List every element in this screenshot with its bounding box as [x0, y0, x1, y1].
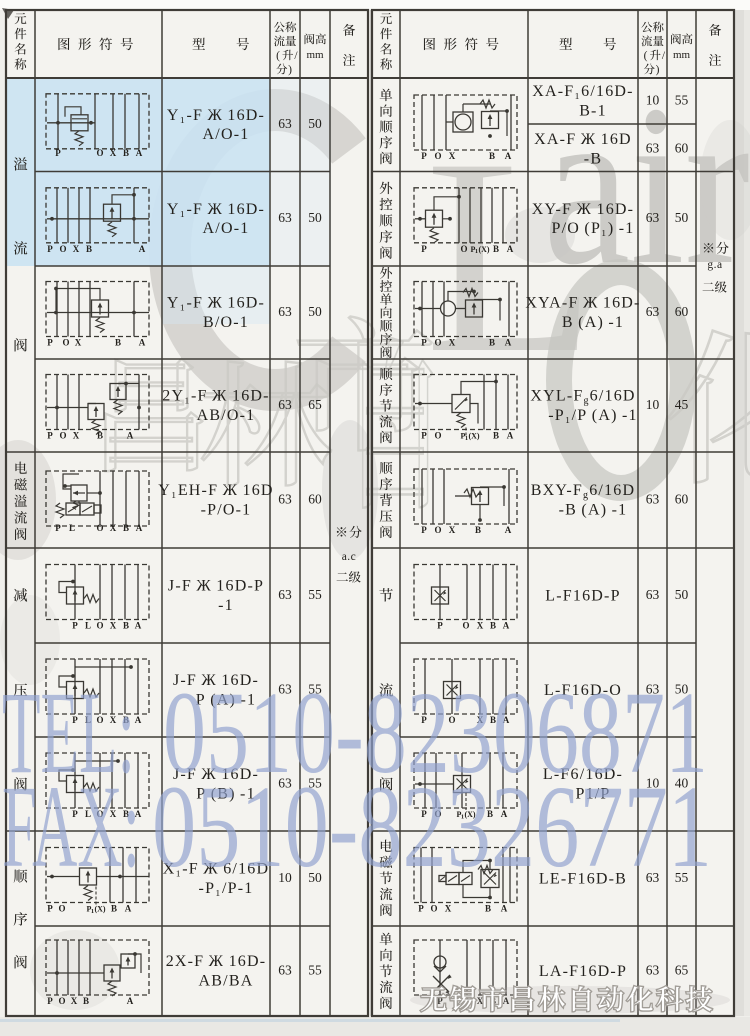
svg-text:O: O: [434, 151, 441, 161]
svg-text:B: B: [123, 621, 129, 631]
svg-text:g.a: g.a: [707, 259, 722, 271]
svg-text:O: O: [434, 338, 441, 348]
svg-text:A: A: [139, 338, 146, 348]
svg-text:A: A: [501, 904, 508, 914]
svg-text:P: P: [421, 431, 427, 441]
svg-text:B: B: [115, 338, 121, 348]
svg-text:P: P: [437, 621, 443, 631]
svg-text:10: 10: [646, 397, 660, 412]
svg-text:55: 55: [308, 963, 322, 978]
svg-text:0510-82326771: 0510-82326771: [152, 761, 712, 892]
svg-text:B (A) -1: B (A) -1: [562, 314, 624, 331]
svg-text:X: X: [73, 244, 80, 254]
svg-text:B: B: [490, 621, 496, 631]
svg-text:P: P: [55, 148, 61, 158]
svg-text:(X): (X): [468, 432, 479, 441]
svg-text:63: 63: [646, 963, 660, 978]
svg-text:B: B: [493, 431, 499, 441]
svg-text:45: 45: [675, 397, 689, 412]
svg-text:O: O: [58, 904, 65, 914]
svg-text:50: 50: [675, 587, 689, 602]
svg-text:A: A: [507, 431, 514, 441]
svg-text:X: X: [477, 621, 484, 631]
svg-text:63: 63: [646, 492, 660, 507]
svg-text:(: (: [644, 50, 648, 62]
svg-text:A: A: [125, 904, 132, 914]
svg-text:P: P: [418, 904, 424, 914]
svg-text:X: X: [445, 904, 452, 914]
svg-text:A: A: [127, 431, 134, 441]
svg-text:P: P: [47, 244, 53, 254]
svg-text:63: 63: [278, 963, 292, 978]
svg-text:P: P: [421, 525, 427, 535]
svg-text:2Y₁-F Ж 16D-: 2Y₁-F Ж 16D-: [162, 388, 269, 405]
svg-text:AB/BA: AB/BA: [199, 973, 254, 990]
svg-text:P: P: [47, 996, 53, 1006]
svg-text:50: 50: [308, 116, 322, 131]
svg-text:B: B: [83, 996, 89, 1006]
svg-text:50: 50: [675, 210, 689, 225]
svg-text:O: O: [59, 244, 66, 254]
svg-text:(: (: [276, 50, 280, 62]
svg-text:-B (A) -1: -B (A) -1: [559, 502, 628, 519]
svg-text:L-F16D-P: L-F16D-P: [545, 588, 620, 605]
svg-text:mm: mm: [306, 49, 324, 61]
svg-text:60: 60: [675, 304, 689, 319]
svg-text:X: X: [71, 996, 78, 1006]
svg-text:X: X: [73, 431, 80, 441]
svg-text:A/O-1: A/O-1: [203, 126, 250, 143]
svg-text:P: P: [421, 338, 427, 348]
svg-text:A: A: [507, 244, 514, 254]
svg-text:B: B: [489, 338, 495, 348]
svg-text:XA-F₁6/16D-: XA-F₁6/16D-: [532, 83, 633, 100]
svg-text:A: A: [136, 148, 143, 158]
svg-text:60: 60: [308, 492, 322, 507]
svg-text:J-F Ж 16D-P: J-F Ж 16D-P: [168, 578, 264, 595]
svg-text:P: P: [47, 338, 53, 348]
svg-text:63: 63: [278, 116, 292, 131]
svg-text:63: 63: [646, 587, 660, 602]
svg-text:B: B: [123, 148, 129, 158]
svg-text:O: O: [462, 621, 469, 631]
svg-text:FAX:: FAX:: [2, 761, 140, 892]
svg-text:-P₁/P (A) -1: -P₁/P (A) -1: [548, 407, 638, 424]
svg-text:63: 63: [278, 492, 292, 507]
svg-text:XYA-F Ж 16D-: XYA-F Ж 16D-: [525, 295, 640, 312]
svg-text:2X-F Ж 16D-: 2X-F Ж 16D-: [166, 953, 267, 970]
svg-text:B-1: B-1: [579, 103, 607, 120]
svg-text:B/O-1: B/O-1: [203, 314, 249, 331]
svg-text:B: B: [97, 431, 103, 441]
svg-text:A: A: [505, 338, 512, 348]
svg-text:LA-F16D-P: LA-F16D-P: [539, 963, 627, 980]
svg-text:60: 60: [675, 492, 689, 507]
svg-text:63: 63: [278, 304, 292, 319]
svg-text:O: O: [96, 523, 103, 533]
svg-text:55: 55: [675, 93, 689, 108]
svg-text:P: P: [421, 244, 427, 254]
svg-text:55: 55: [308, 587, 322, 602]
svg-text:mm: mm: [673, 49, 691, 61]
svg-text:63: 63: [278, 210, 292, 225]
svg-text:50: 50: [308, 210, 322, 225]
svg-text:B: B: [475, 525, 481, 535]
svg-text:XY-F Ж 16D-: XY-F Ж 16D-: [532, 201, 634, 218]
svg-text:B: B: [86, 244, 92, 254]
svg-text:-1: -1: [218, 597, 234, 614]
svg-text:A: A: [505, 525, 512, 535]
svg-text:50: 50: [308, 304, 322, 319]
svg-text:65: 65: [308, 397, 322, 412]
svg-text:A: A: [135, 715, 142, 725]
svg-text:O: O: [58, 996, 65, 1006]
svg-text:O: O: [96, 148, 103, 158]
svg-text:AB/O-1: AB/O-1: [197, 407, 256, 424]
svg-text:10: 10: [646, 93, 660, 108]
svg-text:A: A: [136, 523, 143, 533]
svg-text:X: X: [75, 338, 82, 348]
svg-text:a.c: a.c: [342, 551, 357, 563]
svg-text:X: X: [449, 525, 456, 535]
svg-text:A: A: [505, 151, 512, 161]
svg-text:L: L: [69, 523, 75, 533]
svg-text:O: O: [62, 338, 69, 348]
svg-text:L: L: [85, 621, 91, 631]
svg-text:A: A: [503, 621, 510, 631]
svg-text:P: P: [55, 523, 61, 533]
svg-text:63: 63: [278, 587, 292, 602]
svg-text:63: 63: [278, 397, 292, 412]
svg-text:B: B: [485, 904, 491, 914]
svg-text:X: X: [449, 338, 456, 348]
svg-text:65: 65: [675, 963, 689, 978]
svg-text:A: A: [127, 996, 134, 1006]
svg-text:O: O: [434, 525, 441, 535]
svg-text:(X): (X): [94, 905, 105, 914]
svg-text:O: O: [96, 621, 103, 631]
svg-text:XYL-Fg6/16D: XYL-Fg6/16D: [530, 388, 635, 407]
svg-text:P: P: [421, 151, 427, 161]
svg-text:X: X: [110, 621, 117, 631]
svg-text:X: X: [110, 148, 117, 158]
svg-text:63: 63: [646, 141, 660, 156]
svg-text:-B: -B: [584, 151, 602, 168]
svg-text:-P/O-1: -P/O-1: [201, 502, 252, 519]
svg-text:60: 60: [675, 141, 689, 156]
svg-text:P: P: [47, 431, 53, 441]
svg-text:A: A: [139, 244, 146, 254]
svg-text:B: B: [489, 151, 495, 161]
svg-text:X: X: [449, 151, 456, 161]
svg-text:A: A: [135, 621, 142, 631]
svg-text:XA-F Ж 16D: XA-F Ж 16D: [534, 131, 632, 148]
svg-text:Y₁EH-F Ж 16D: Y₁EH-F Ж 16D: [158, 482, 273, 499]
svg-text:B: B: [493, 244, 499, 254]
svg-text:Y₁-F Ж 16D-: Y₁-F Ж 16D-: [167, 107, 265, 124]
svg-text:Y₁-F Ж 16D-: Y₁-F Ж 16D-: [167, 201, 265, 218]
svg-text:B: B: [123, 523, 129, 533]
svg-text:O: O: [59, 431, 66, 441]
svg-text:BXY-Fg6/16D: BXY-Fg6/16D: [531, 482, 635, 501]
svg-text:63: 63: [646, 210, 660, 225]
svg-text:P: P: [72, 621, 78, 631]
svg-text:O: O: [460, 244, 467, 254]
svg-text:X: X: [110, 523, 117, 533]
svg-text:O: O: [430, 904, 437, 914]
svg-text:63: 63: [646, 304, 660, 319]
svg-text:(X): (X): [478, 245, 489, 254]
svg-text:Y₁-F Ж 16D-: Y₁-F Ж 16D-: [167, 295, 265, 312]
svg-text:P: P: [47, 904, 53, 914]
svg-text:B: B: [111, 904, 117, 914]
svg-text:): ): [656, 64, 660, 76]
svg-text:A/O-1: A/O-1: [203, 220, 250, 237]
svg-text:P/O (P₁) -1: P/O (P₁) -1: [552, 220, 635, 237]
svg-text:): ): [288, 64, 292, 76]
svg-text:O: O: [434, 431, 441, 441]
